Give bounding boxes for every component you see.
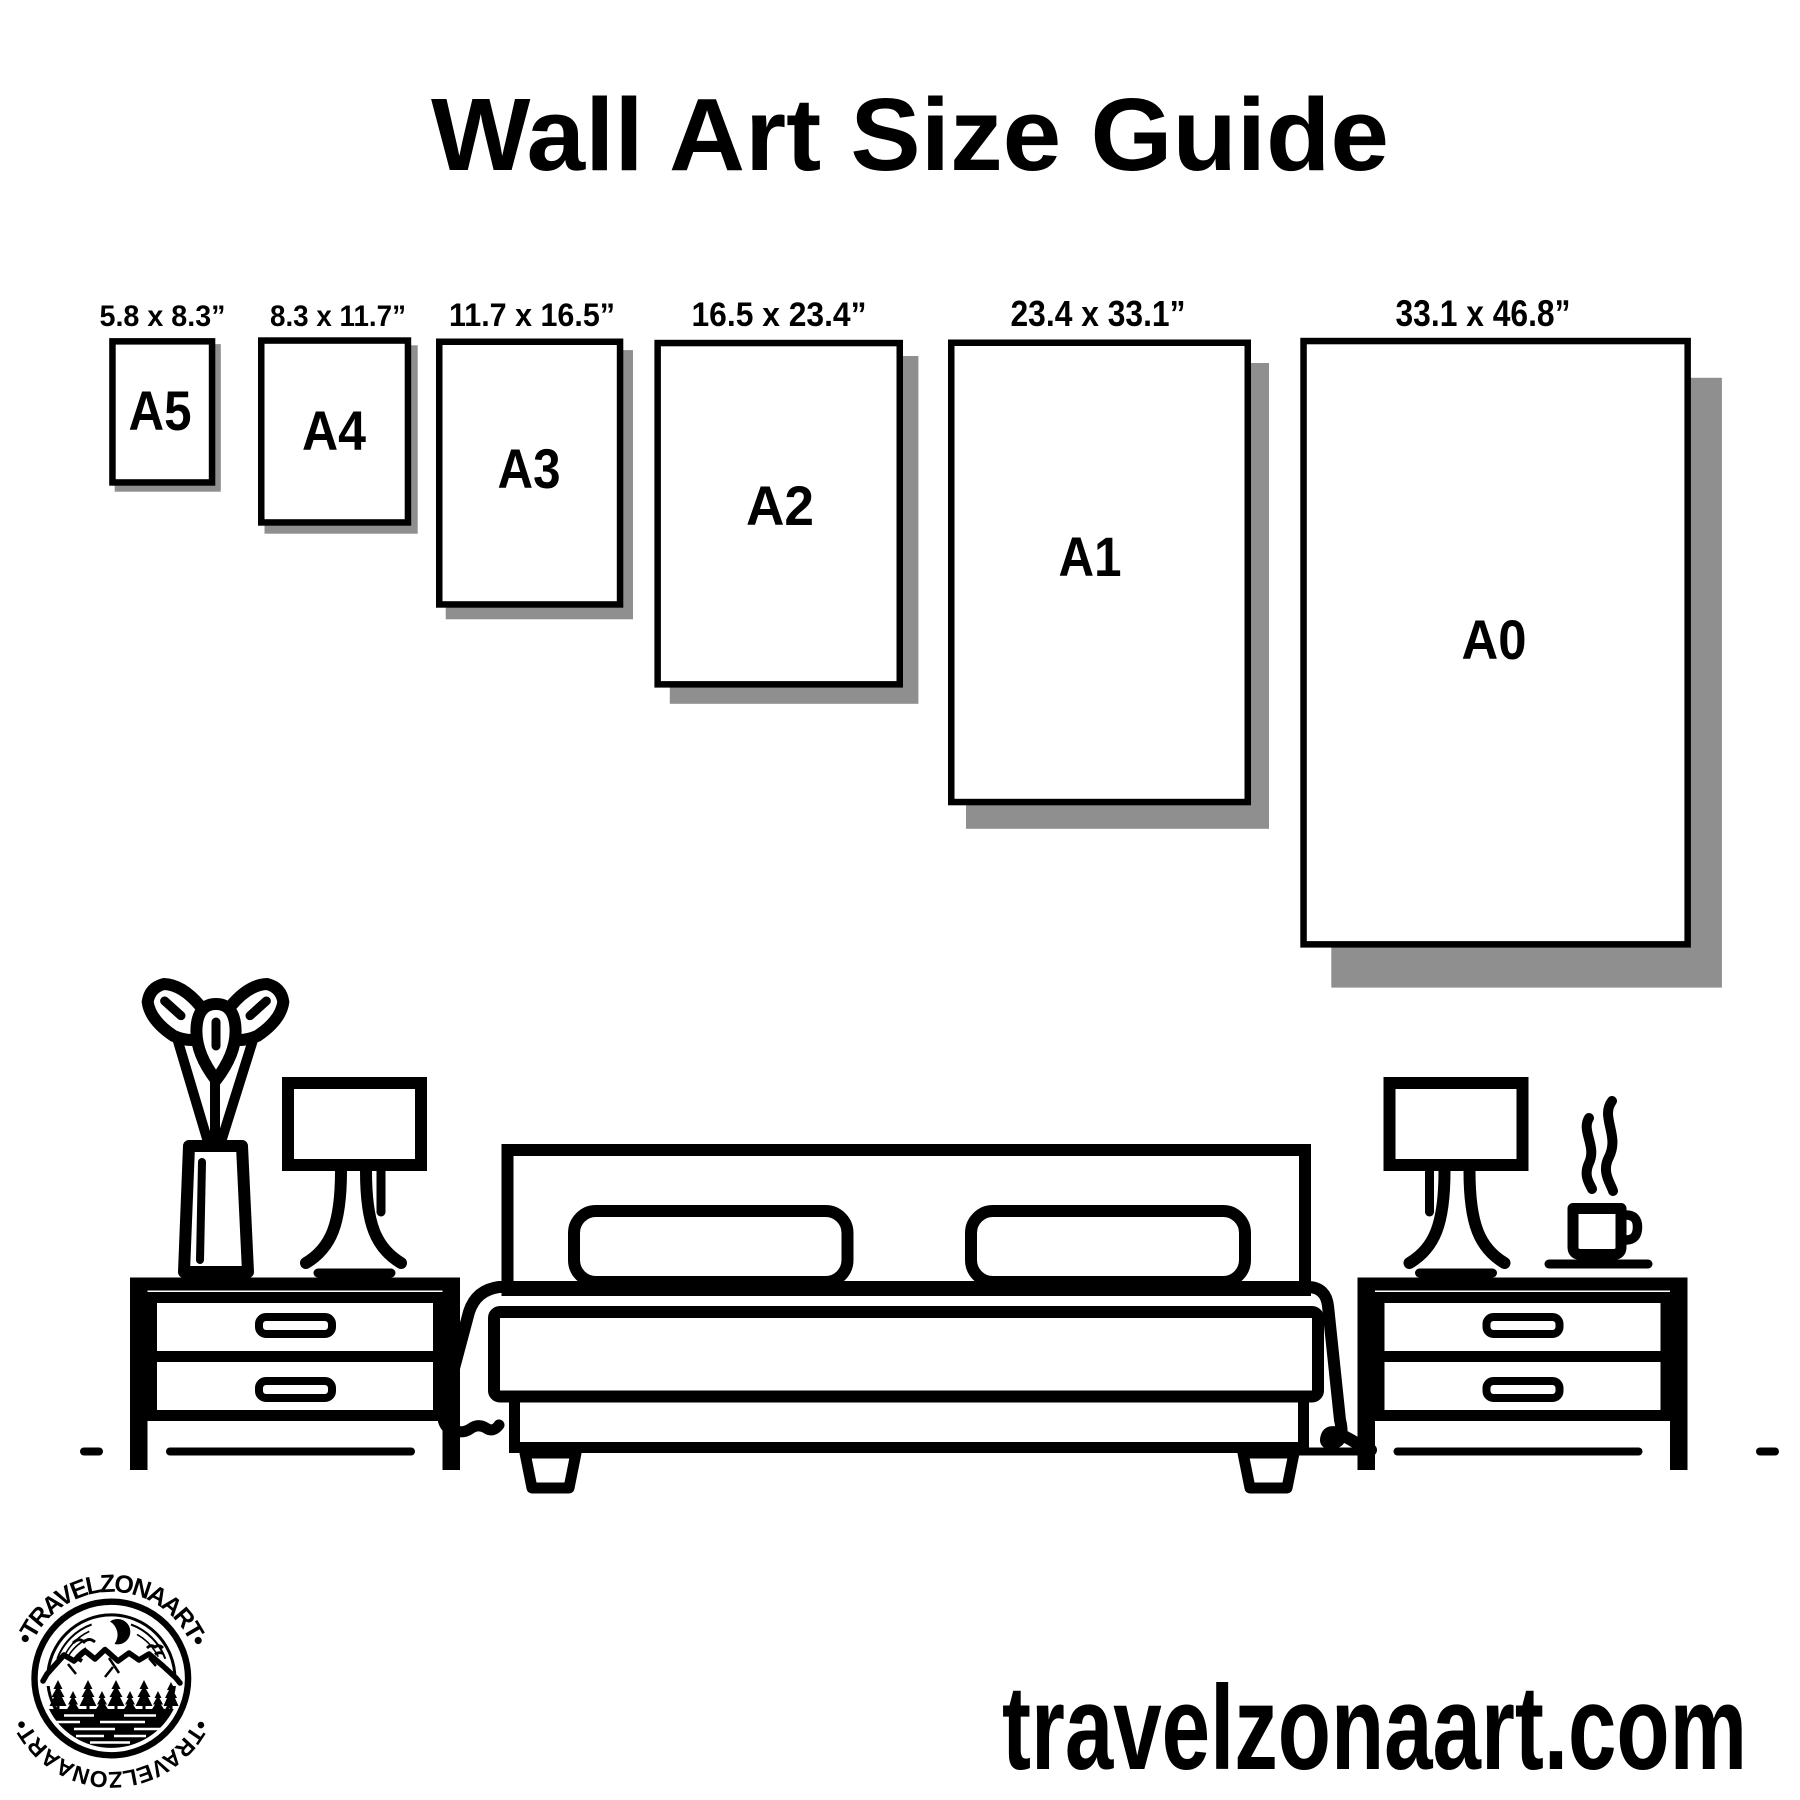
svg-text:A2: A2 (746, 474, 814, 537)
svg-text:A3: A3 (498, 437, 561, 500)
svg-text:Wall Art Size Guide: Wall Art Size Guide (431, 77, 1389, 192)
svg-text:travelzonaart.com: travelzonaart.com (1002, 1661, 1747, 1795)
svg-text:A5: A5 (129, 379, 192, 442)
svg-text:5.8 x 8.3”: 5.8 x 8.3” (100, 300, 226, 333)
svg-text:A1: A1 (1059, 525, 1122, 588)
svg-text:33.1 x 46.8”: 33.1 x 46.8” (1396, 292, 1571, 334)
svg-text:23.4 x 33.1”: 23.4 x 33.1” (1011, 293, 1186, 334)
svg-text:8.3 x 11.7”: 8.3 x 11.7” (270, 300, 406, 333)
svg-text:11.7 x 16.5”: 11.7 x 16.5” (449, 297, 615, 333)
svg-text:A0: A0 (1462, 608, 1527, 671)
svg-text:A4: A4 (302, 399, 366, 462)
svg-text:16.5 x 23.4”: 16.5 x 23.4” (692, 296, 867, 334)
